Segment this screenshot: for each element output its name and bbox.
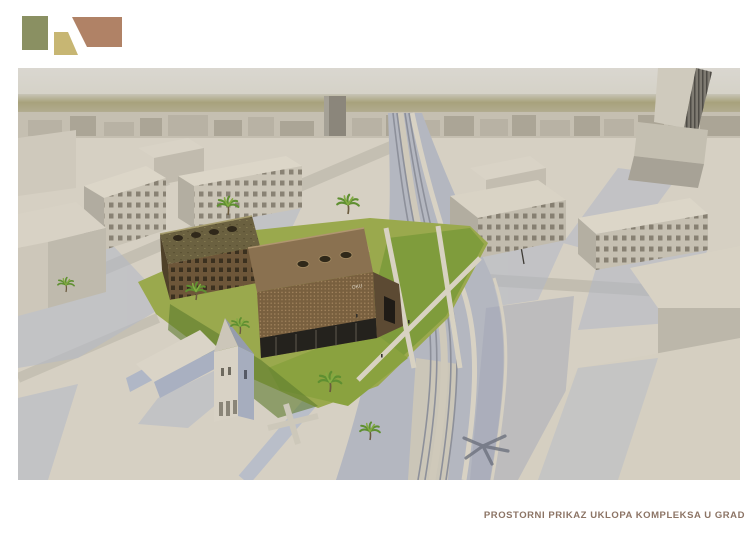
aerial-render: OKU xyxy=(18,68,740,480)
logo-shape-khaki xyxy=(54,32,78,55)
caption-title: PROSTORNI PRIKAZ UKLOPA KOMPLEKSA U GRAD xyxy=(484,510,745,521)
distant-tower-slab xyxy=(324,96,346,136)
sky xyxy=(18,68,740,118)
studio-logo xyxy=(0,0,140,64)
render-viewport: OKU xyxy=(18,68,740,480)
presentation-board: OKU xyxy=(0,0,756,552)
logo-shape-green xyxy=(22,16,48,50)
logo-shape-brown xyxy=(72,17,122,47)
